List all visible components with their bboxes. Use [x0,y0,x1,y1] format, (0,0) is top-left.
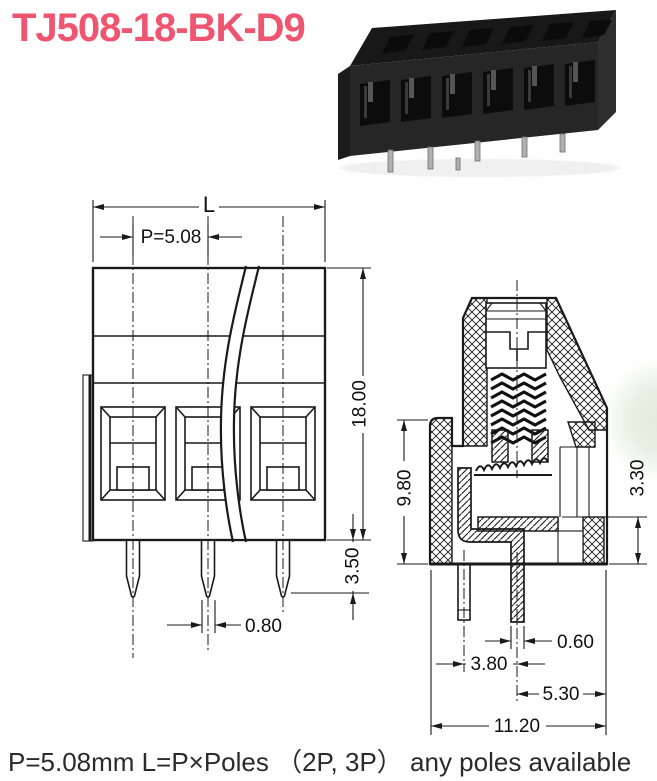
dim-label-pin-to-back: 5.30 [543,684,580,705]
dim-height: 18.00 [327,268,371,540]
product-photo [330,8,640,180]
catalog-page: TJ508-18-BK-D9 [0,0,657,781]
dim-label-depth: 11.20 [494,716,540,737]
technical-drawing: L P=5.08 18.00 [0,170,657,745]
dim-label-clamp-gap: 3.30 [628,460,649,497]
front-left-flange [83,375,93,541]
dim-pin-width: 0.80 [167,600,282,637]
photo-left-face [338,66,350,160]
dim-label-pin-width: 0.80 [245,616,282,637]
dim-pitch: P=5.08 [100,225,242,256]
dim-front-height: 9.80 [394,420,428,564]
dim-label-pin-length: 3.50 [343,548,364,585]
footer-note: P=5.08mm L=P×Poles （2P, 3P） any poles av… [8,742,631,779]
dim-label-height: 18.00 [350,380,371,428]
dim-overall-width: L [93,192,325,262]
side-screw-head [486,303,546,368]
dim-pin-to-back: 5.30 [517,684,606,705]
dim-pin-thickness: 0.60 [485,626,594,653]
dim-label-front-height: 9.80 [395,470,416,507]
dim-label-pin-thickness: 0.60 [557,632,594,653]
dim-label-pitch: P=5.08 [141,227,202,248]
front-view-drawing: L P=5.08 18.00 [83,192,371,658]
side-view-drawing: 9.80 3.30 0.60 [394,280,649,737]
dim-label-L: L [203,192,215,217]
dim-pin-offset: 3.80 [436,654,545,675]
product-code-title: TJ508-18-BK-D9 [12,6,305,51]
dim-label-pin-offset: 3.80 [471,654,508,675]
